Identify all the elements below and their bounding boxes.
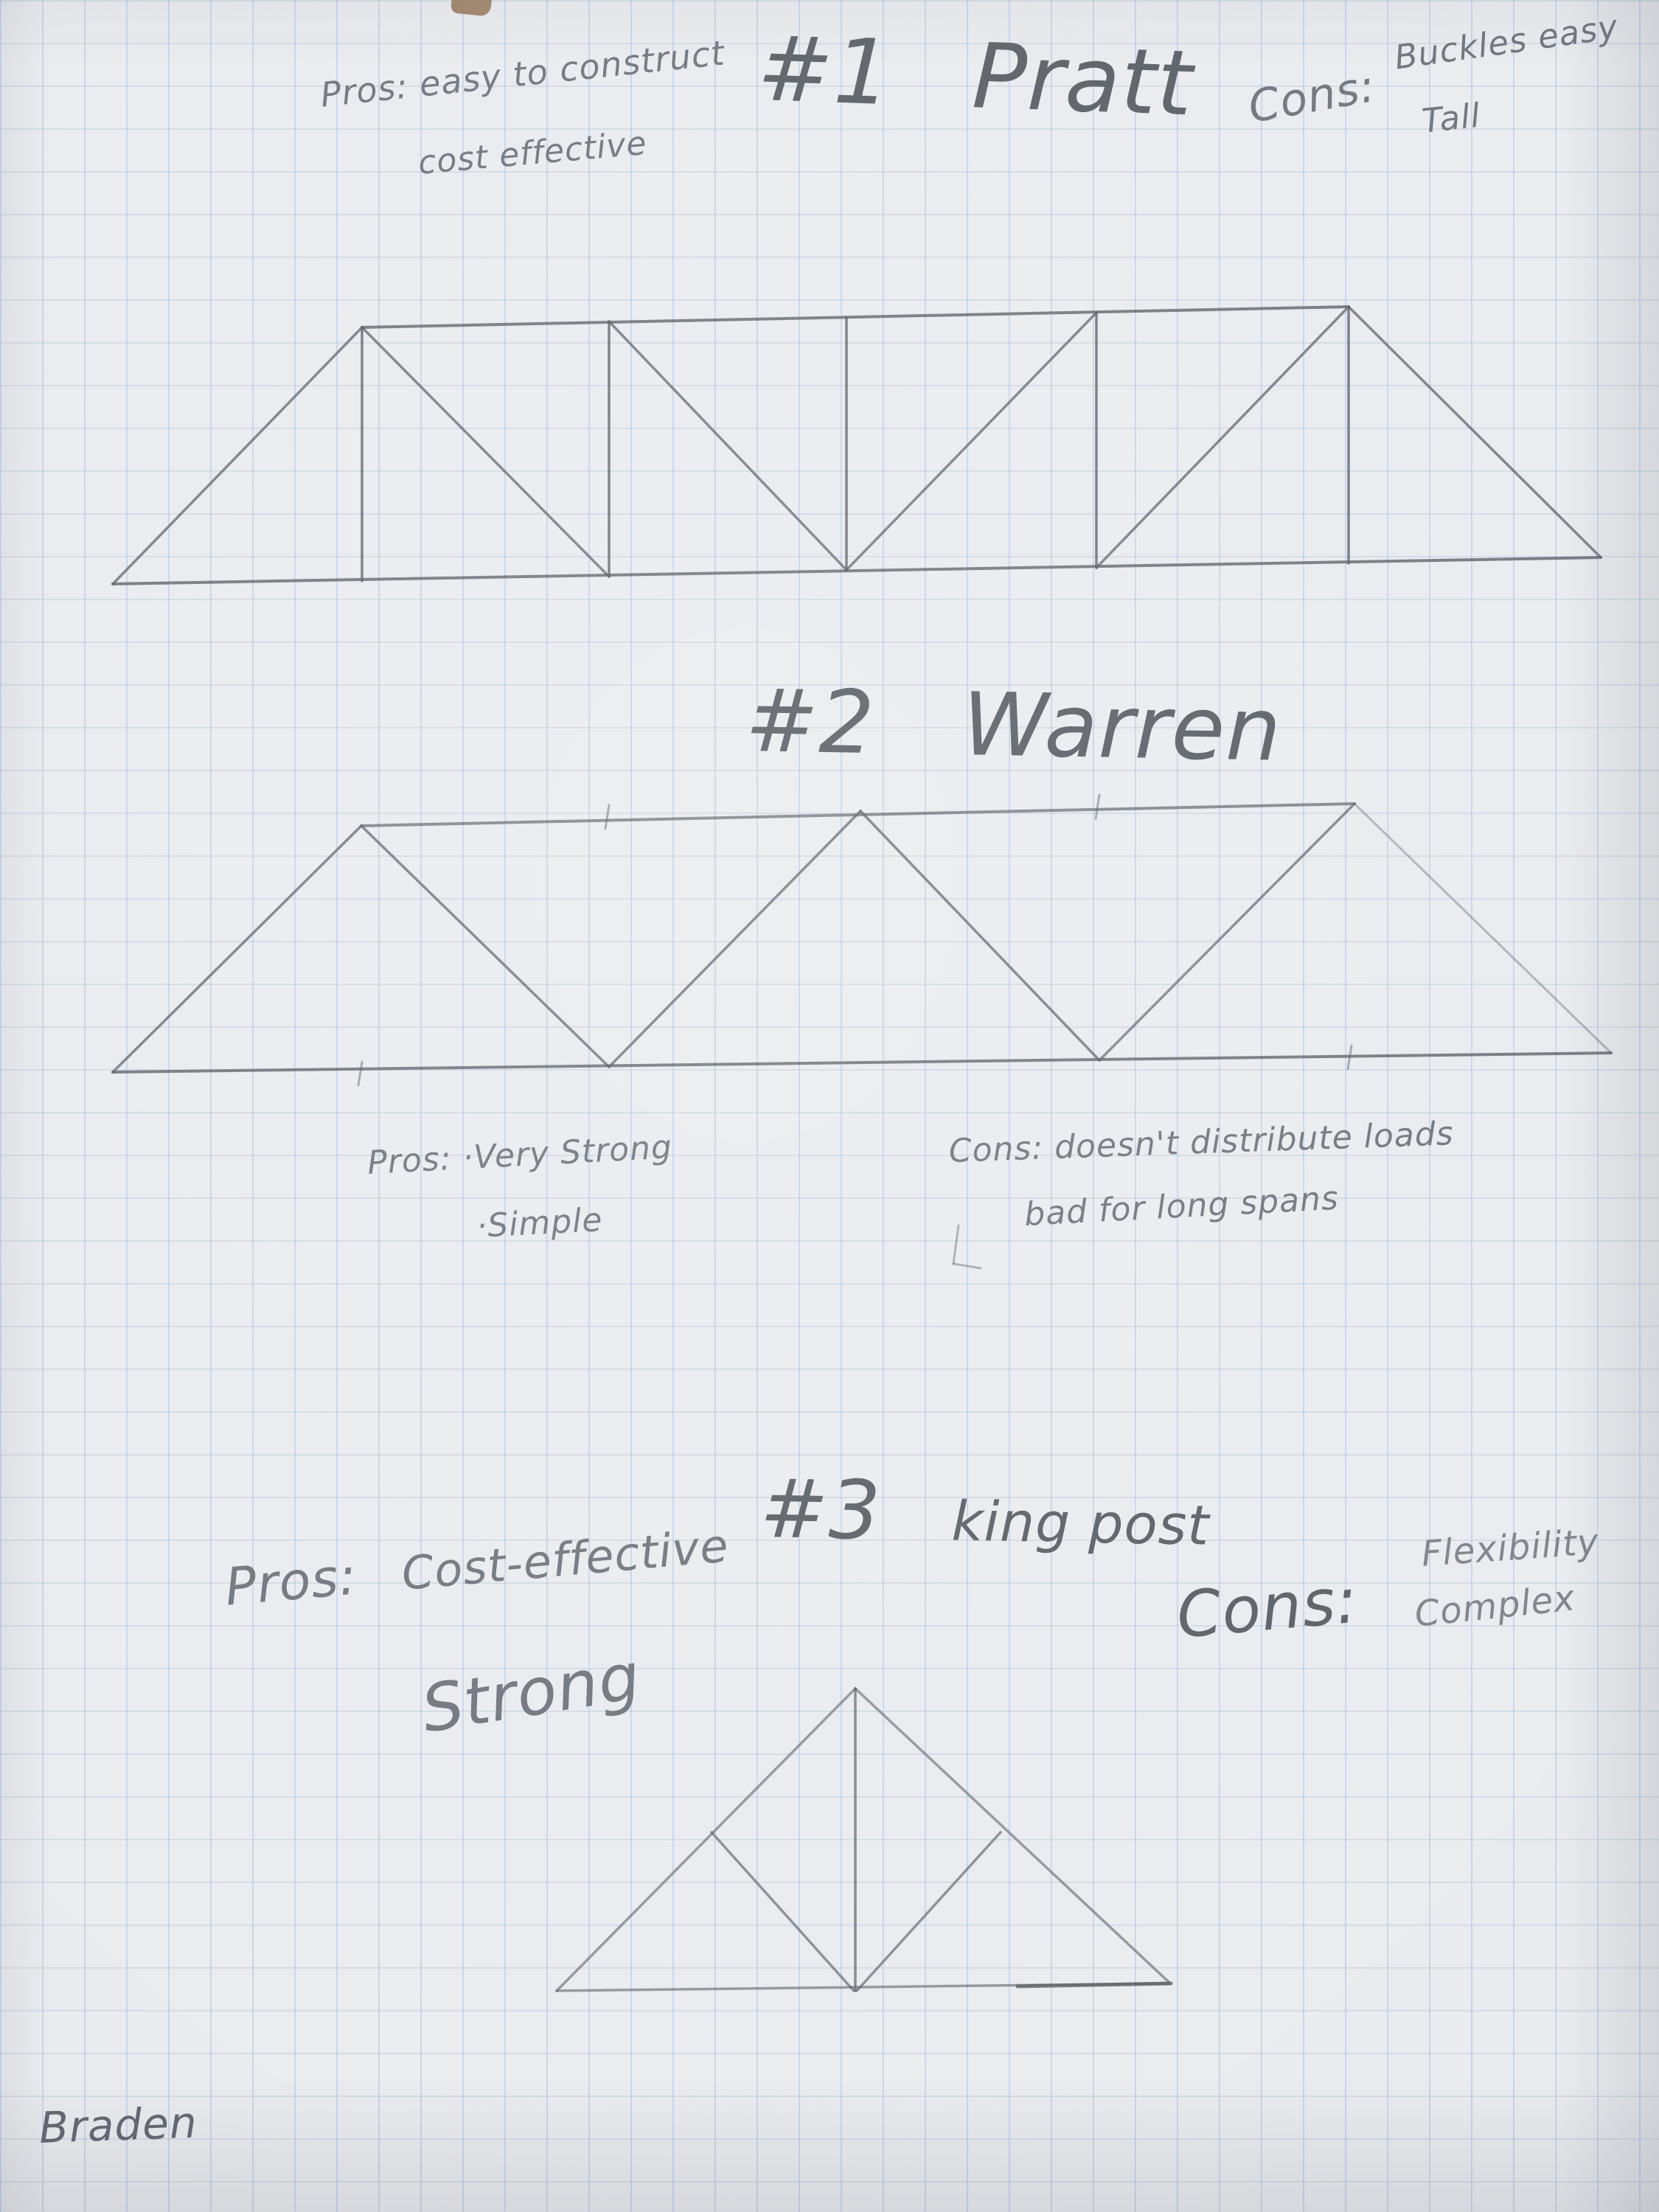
- pratt-segment-12: [1349, 307, 1601, 557]
- truss2-pros-line2: ·Simple: [476, 1201, 604, 1245]
- truss3-pros-label: Pros:: [223, 1545, 359, 1617]
- truss2-name: Warren: [961, 673, 1282, 781]
- truss2-pros-label: Pros:: [366, 1140, 453, 1182]
- pratt-segment-11: [1096, 307, 1349, 568]
- warren-segment-4: [609, 811, 860, 1067]
- warren-segment-10: [358, 1062, 362, 1085]
- pratt-segment-7: [113, 327, 362, 584]
- truss1-number: #1: [756, 16, 894, 125]
- pratt-segment-9: [609, 321, 846, 570]
- warren-segment-3: [361, 826, 609, 1067]
- truss3-cons-label: Cons:: [1174, 1564, 1361, 1653]
- warren-segment-8: [605, 805, 609, 829]
- truss2-cons-label: Cons:: [948, 1130, 1044, 1170]
- truss1-cons-line2: Tall: [1420, 96, 1482, 141]
- marks-segment-1: [953, 1264, 981, 1268]
- truss1-name: Pratt: [970, 24, 1194, 136]
- pratt-segment-10: [846, 313, 1096, 570]
- marks-truss: [953, 1225, 981, 1268]
- signature: Braden: [38, 2098, 198, 2153]
- pratt-segment-0: [113, 557, 1601, 584]
- pratt-truss: [113, 307, 1601, 584]
- kingpost-segment-1: [855, 1688, 1169, 1982]
- kingpost-segment-0: [557, 1688, 855, 1991]
- kingpost-segment-5: [712, 1832, 854, 1991]
- pratt-segment-8: [362, 327, 609, 577]
- kingpost-truss: [557, 1688, 1171, 1991]
- truss3-name: king post: [951, 1490, 1210, 1558]
- warren-segment-2: [113, 826, 361, 1072]
- warren-truss: [113, 795, 1611, 1085]
- truss3-number: #3: [759, 1461, 882, 1558]
- kingpost-segment-6: [857, 1832, 1001, 1991]
- truss2-number: #2: [745, 669, 876, 773]
- truss1-title: #1 Pratt: [756, 16, 1194, 136]
- warren-segment-5: [860, 811, 1099, 1060]
- warren-segment-0: [113, 1053, 1611, 1072]
- warren-segment-7: [1354, 804, 1611, 1053]
- warren-segment-6: [1099, 804, 1354, 1060]
- truss2-title: #2 Warren: [745, 669, 1283, 781]
- notebook-page: Pros: easy to construct cost effective #…: [0, 0, 1659, 2212]
- truss3-title: #3 king post: [759, 1461, 1211, 1564]
- truss-drawings-layer: [0, 0, 1659, 2212]
- warren-segment-9: [1096, 795, 1099, 818]
- pratt-segment-1: [362, 307, 1349, 327]
- marks-segment-0: [953, 1225, 959, 1264]
